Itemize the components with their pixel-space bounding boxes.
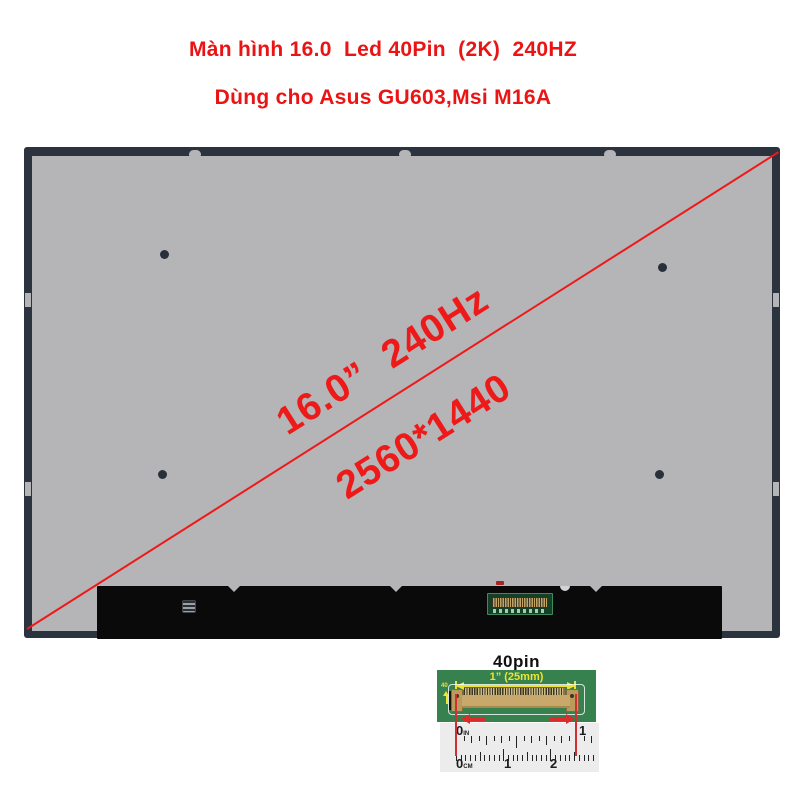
ruler-tick (516, 736, 517, 748)
ruler-tick (484, 755, 485, 761)
board-notch (590, 586, 602, 592)
board-component (182, 600, 196, 613)
ruler-tick (584, 736, 585, 741)
ruler-tick (560, 755, 561, 761)
ruler-tick (471, 736, 472, 743)
mounting-bump (399, 150, 411, 159)
ruler-tick (593, 755, 594, 761)
screw-hole (655, 470, 664, 479)
ruler-tick (524, 736, 525, 741)
ruler-tick (501, 736, 502, 743)
panel-bottom-board (97, 586, 722, 639)
ruler-tick (494, 755, 495, 761)
title-line-1: Màn hình 16.0 Led 40Pin (2K) 240HZ (0, 38, 766, 62)
ruler-tick (541, 755, 542, 761)
product-image: Màn hình 16.0 Led 40Pin (2K) 240HZ Dùng … (0, 0, 800, 800)
connector-figure-title: 40pin (437, 652, 596, 672)
measure-guide-line-right (575, 694, 577, 756)
ruler-tick (569, 755, 570, 761)
ruler-tick (531, 736, 532, 743)
ruler-tick (532, 755, 533, 761)
ruler-tick (569, 736, 570, 741)
mounting-tab (25, 482, 31, 496)
ruler-tick (561, 736, 562, 743)
screw-hole (160, 250, 169, 259)
pin-count-label: 40 (441, 683, 448, 689)
ear-hole (570, 694, 574, 698)
ruler-tick (509, 736, 510, 741)
ruler-tick (522, 755, 523, 761)
ruler-tick (494, 736, 495, 741)
ruler-tick (464, 736, 465, 741)
mounting-tab (773, 293, 779, 307)
ruler-tick (546, 755, 547, 761)
measure-arrow-left-icon (461, 714, 487, 724)
screw-hole (158, 470, 167, 479)
ruler-tick (479, 736, 480, 741)
board-notch (228, 586, 240, 592)
board-notch (390, 586, 402, 592)
ruler-tick (475, 755, 476, 761)
ruler-cm-one-label: 1 (504, 757, 511, 770)
screw-hole (658, 263, 667, 272)
ruler-tick (489, 755, 490, 761)
ruler-tick (584, 755, 585, 761)
mounting-tab (25, 293, 31, 307)
arrow-head (566, 714, 575, 724)
ruler-tick (539, 736, 540, 741)
connector-body (462, 695, 570, 708)
ruler-tick (588, 755, 589, 761)
ruler-tick (536, 755, 537, 761)
ruler-tick (565, 755, 566, 761)
edp-connector-markings (493, 609, 547, 613)
ruler-tick (591, 736, 592, 743)
ruler-tick (486, 736, 487, 745)
edp-connector-pins (492, 598, 548, 607)
ruler-tick (517, 755, 518, 761)
measure-guide-line-left (455, 694, 457, 756)
ruler-tick (527, 752, 528, 761)
ruler-tick (480, 752, 481, 761)
board-bump (560, 586, 570, 591)
ruler-cm-two-label: 2 (550, 757, 557, 770)
mounting-bump (604, 150, 616, 159)
red-marker (496, 581, 504, 585)
ruler-tick (579, 755, 580, 761)
arrow-bar (469, 717, 486, 721)
ruler-tick (499, 755, 500, 761)
ruler-tick (513, 755, 514, 761)
arrow-bar (550, 717, 567, 721)
ruler-tick (554, 736, 555, 741)
ruler-tick (546, 736, 547, 745)
edp-connector (487, 593, 553, 615)
mounting-bump (189, 150, 201, 159)
title-line-2: Dùng cho Asus GU603,Msi M16A (0, 86, 766, 110)
measure-arrow-right-icon (549, 714, 575, 724)
ruler-cm-zero-label: 0CM (456, 757, 473, 774)
mounting-tab (773, 482, 779, 496)
